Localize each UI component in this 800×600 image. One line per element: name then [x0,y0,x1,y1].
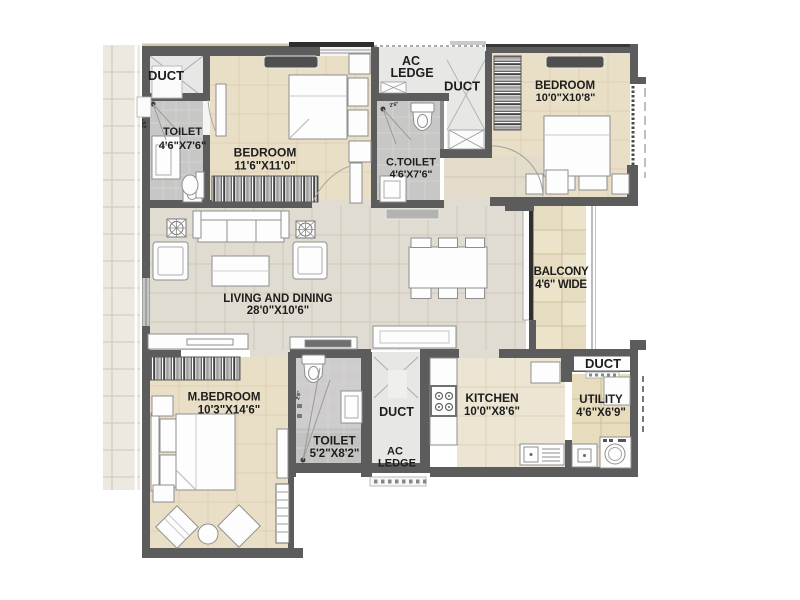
svg-text:C.TOILET: C.TOILET [386,157,436,169]
svg-text:4'6"X7'6": 4'6"X7'6" [159,140,206,152]
svg-text:BALCONY: BALCONY [534,266,589,278]
svg-text:2'6": 2'6" [142,118,148,128]
svg-text:M.BEDROOM: M.BEDROOM [188,392,261,404]
svg-text:4'6" WIDE: 4'6" WIDE [535,279,587,291]
svg-text:TOILET: TOILET [163,126,202,138]
svg-text:KITCHEN: KITCHEN [465,391,518,405]
svg-text:10'0"X8'6": 10'0"X8'6" [464,406,520,418]
svg-text:TOILET: TOILET [313,434,356,448]
svg-text:4'6'X7'6": 4'6'X7'6" [390,169,433,181]
svg-text:10'3"X14'6": 10'3"X14'6" [198,405,260,417]
svg-text:UTILITY: UTILITY [579,394,623,406]
svg-text:DUCT: DUCT [585,356,621,371]
svg-text:LIVING AND DINING: LIVING AND DINING [223,293,333,305]
svg-text:28'0"X10'6": 28'0"X10'6" [247,305,309,317]
svg-text:4'6"X6'9": 4'6"X6'9" [576,407,626,419]
svg-text:5'2"X8'2": 5'2"X8'2" [310,448,360,460]
svg-text:LEDGE: LEDGE [390,66,433,80]
svg-text:AC: AC [387,446,403,458]
svg-text:BEDROOM: BEDROOM [535,80,595,92]
svg-text:LEDGE: LEDGE [378,458,416,470]
svg-text:11'6"X11'0": 11'6"X11'0" [234,161,295,173]
svg-text:DUCT: DUCT [379,405,414,419]
svg-text:DUCT: DUCT [444,79,480,94]
svg-text:DUCT: DUCT [148,68,184,83]
svg-text:10'0"X10'8": 10'0"X10'8" [536,92,596,104]
svg-text:BEDROOM: BEDROOM [234,146,297,160]
